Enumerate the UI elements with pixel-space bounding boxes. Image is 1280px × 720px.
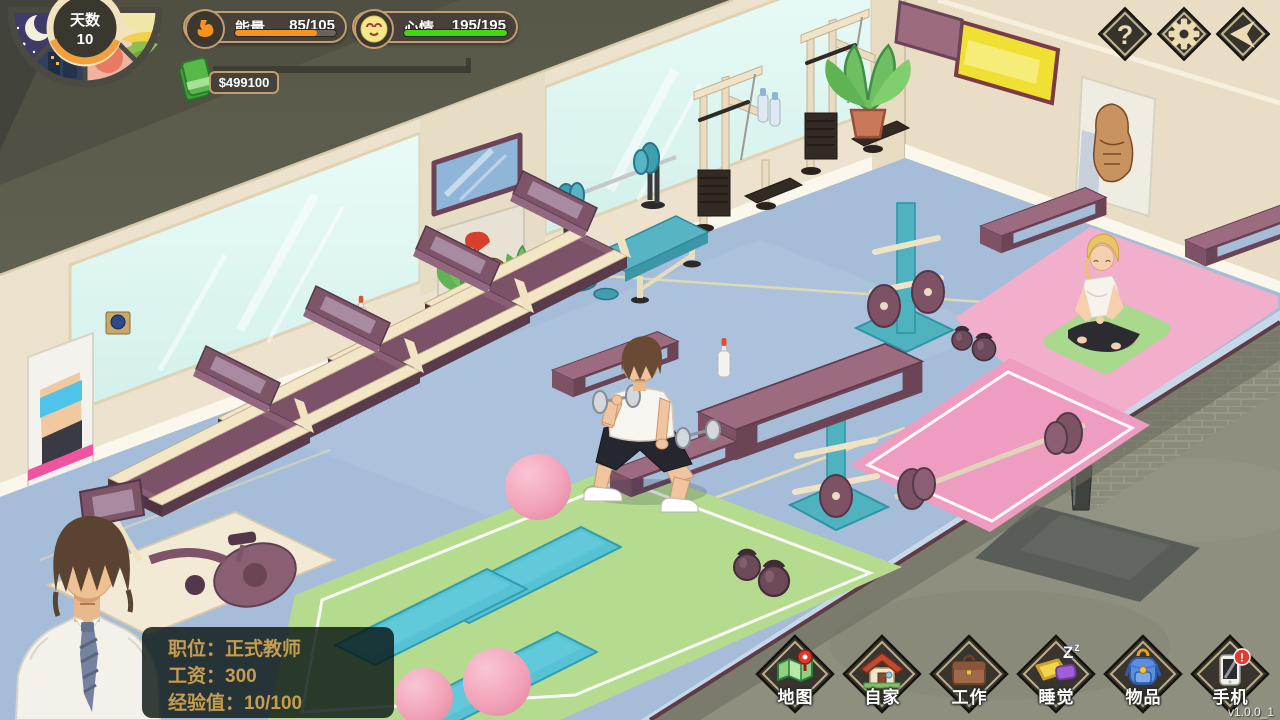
- job-position: 职位：正式教师: [168, 636, 394, 663]
- job-salary: 工资：300: [168, 663, 394, 690]
- help-button[interactable]: ?: [1096, 5, 1154, 63]
- day-label: 天数: [70, 11, 101, 29]
- energy-fill: [235, 30, 317, 36]
- nav-map-button[interactable]: 地图: [752, 630, 839, 718]
- mood-bar: 心情 195/195: [352, 11, 518, 43]
- svg-text:Z: Z: [1063, 643, 1073, 662]
- day-value: 10: [77, 31, 94, 48]
- gym-scene: [0, 0, 1280, 720]
- back-button[interactable]: [1214, 5, 1272, 63]
- svg-text:z: z: [1074, 640, 1080, 654]
- nav-work-label: 工作: [926, 683, 1013, 708]
- nav-items-button[interactable]: 物品: [1100, 630, 1187, 718]
- day-time-wheel[interactable]: 天数 10: [0, 0, 180, 108]
- job-experience: 经验值：10/100: [168, 690, 394, 717]
- nav-home-label: 自家: [839, 683, 926, 708]
- muscle-icon: [185, 9, 225, 49]
- gear-icon: [1169, 19, 1200, 50]
- job-info-panel: 职位：正式教师 工资：300 经验值：10/100: [142, 627, 394, 718]
- game-screen: 天数 10 能量 85/105 心情 195/195 $499100 ?: [0, 0, 1280, 720]
- nav-sleep-button[interactable]: Z z 睡觉: [1013, 630, 1100, 718]
- smiley-icon: [354, 9, 394, 49]
- money-display: $499100: [209, 71, 279, 94]
- version-text: v1.0.0_1: [1228, 705, 1274, 719]
- mood-fill: [404, 30, 507, 36]
- question-icon: ?: [1117, 20, 1134, 50]
- nav-sleep-label: 睡觉: [1013, 683, 1100, 708]
- settings-button[interactable]: [1155, 5, 1213, 63]
- nav-items-label: 物品: [1100, 683, 1187, 708]
- exercise-ball[interactable]: [505, 454, 571, 520]
- exercise-ball[interactable]: [463, 648, 531, 716]
- energy-track: [234, 29, 337, 37]
- energy-bar: 能量 85/105: [183, 11, 347, 43]
- bottom-navbar: 地图 自家 工作: [752, 630, 1274, 718]
- nav-map-label: 地图: [752, 683, 839, 708]
- top-buttons: ?: [1096, 5, 1272, 63]
- svg-text:!: !: [1240, 651, 1244, 665]
- nav-work-button[interactable]: 工作: [926, 630, 1013, 718]
- nav-home-button[interactable]: 自家: [839, 630, 926, 718]
- wall-switch: [106, 312, 130, 334]
- mood-track: [403, 29, 508, 37]
